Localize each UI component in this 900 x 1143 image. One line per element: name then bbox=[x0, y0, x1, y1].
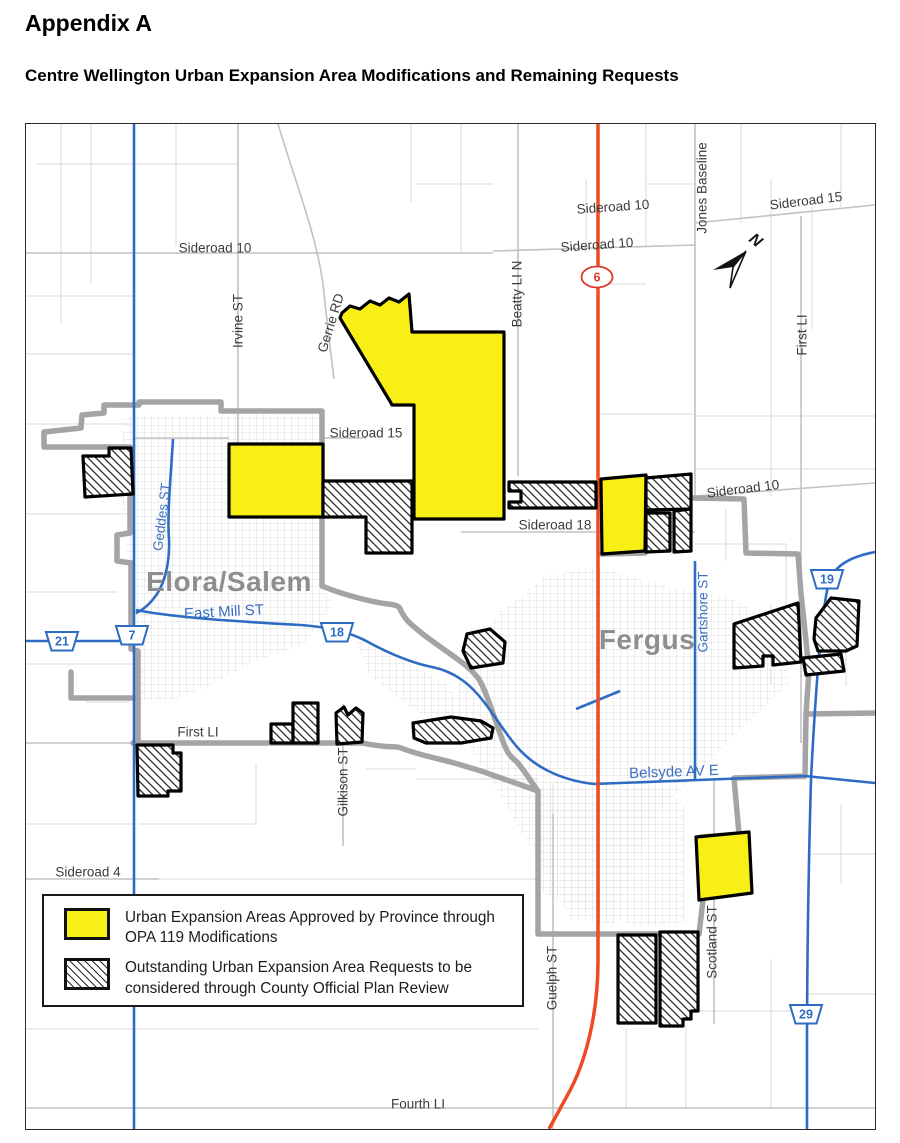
road-label-beatty-li-n: Beatty LI N bbox=[510, 261, 524, 328]
svg-text:7: 7 bbox=[129, 629, 136, 643]
north-arrow-icon bbox=[713, 251, 746, 288]
legend-item-approved: Urban Expansion Areas Approved by Provin… bbox=[64, 908, 512, 948]
legend-label-outstanding: Outstanding Urban Expansion Area Request… bbox=[125, 958, 512, 998]
road-label-sideroad4: Sideroad 4 bbox=[55, 865, 120, 879]
city-label-fergus: Fergus bbox=[599, 626, 695, 654]
road-label-belsyde-av-e: Belsyde AV E bbox=[629, 763, 719, 781]
page-title: Appendix A bbox=[25, 10, 152, 37]
legend-swatch-approved bbox=[64, 908, 110, 940]
legend-label-approved: Urban Expansion Areas Approved by Provin… bbox=[125, 908, 512, 948]
road-label-gilkison-st: Gilkison ST bbox=[336, 747, 350, 816]
road-label-jones-baseline: Jones Baseline bbox=[695, 142, 709, 234]
road-label-east-mill-st: East Mill ST bbox=[184, 602, 265, 621]
page-subtitle: Centre Wellington Urban Expansion Area M… bbox=[25, 66, 679, 86]
road-label-sideroad15-centre: Sideroad 15 bbox=[330, 426, 403, 440]
svg-text:19: 19 bbox=[820, 573, 834, 587]
svg-text:29: 29 bbox=[799, 1008, 813, 1022]
svg-text:6: 6 bbox=[594, 271, 601, 285]
approved-area-west bbox=[229, 444, 323, 517]
city-label-elora-salem: Elora/Salem bbox=[146, 568, 312, 596]
approved-area-fergus-north bbox=[601, 475, 646, 554]
svg-text:21: 21 bbox=[55, 635, 69, 649]
road-label-guelph-st: Guelph ST bbox=[545, 946, 559, 1011]
map-frame: Sideroad 10 Sideroad 10 Sideroad 15 Jone… bbox=[25, 123, 876, 1130]
road-label-first-li-northeast: First LI bbox=[795, 314, 809, 355]
legend-item-outstanding: Outstanding Urban Expansion Area Request… bbox=[64, 958, 512, 998]
route-shield-19: 19 bbox=[809, 567, 845, 592]
road-label-first-li-west: First LI bbox=[177, 725, 218, 739]
road-label-sideroad10-west: Sideroad 10 bbox=[179, 241, 252, 255]
route-shield-21: 21 bbox=[44, 629, 80, 654]
svg-text:18: 18 bbox=[330, 626, 344, 640]
route-shield-29: 29 bbox=[788, 1002, 824, 1027]
map-legend: Urban Expansion Areas Approved by Provin… bbox=[42, 894, 524, 1007]
road-label-irvine-st: Irvine ST bbox=[231, 294, 245, 348]
road-label-fourth-li: Fourth LI bbox=[391, 1097, 445, 1111]
route-shield-18: 18 bbox=[319, 620, 355, 645]
road-label-scotland-st: Scotland ST bbox=[705, 905, 719, 979]
road-label-sideroad18: Sideroad 18 bbox=[519, 518, 592, 532]
legend-swatch-outstanding bbox=[64, 958, 110, 990]
road-label-gartshore-st: Gartshore ST bbox=[696, 571, 710, 652]
approved-area-fergus-south bbox=[696, 832, 752, 900]
route-shield-6: 6 bbox=[579, 264, 615, 290]
route-shield-7: 7 bbox=[114, 623, 150, 648]
